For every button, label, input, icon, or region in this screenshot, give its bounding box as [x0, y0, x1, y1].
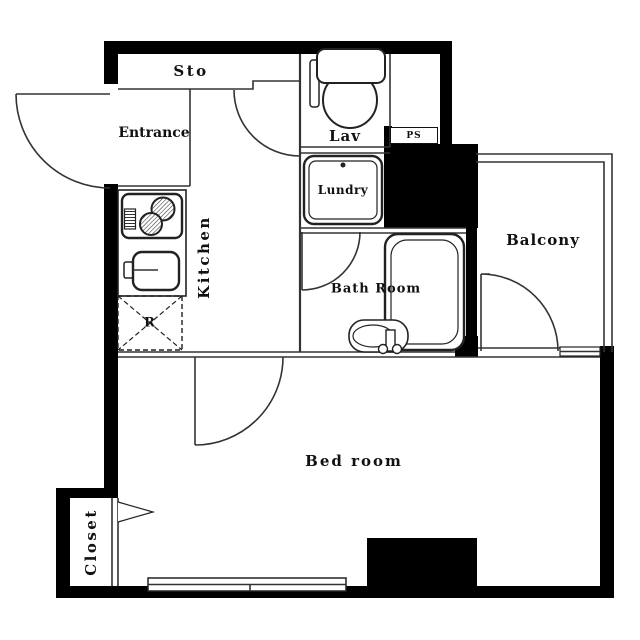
room-balcony [478, 162, 604, 352]
room-label-entrance: Entrance [118, 125, 189, 141]
room-label-ps: PS [406, 131, 421, 141]
room-storage [118, 54, 300, 89]
room-bedroom [118, 357, 600, 586]
room-label-kitchen: Kitchen [195, 215, 213, 299]
floor-plan: Sto Entrance Lav PS Lundry Kitchen Bath … [0, 0, 640, 640]
lav-door-arc [234, 90, 300, 156]
room-label-closet: Closet [82, 508, 100, 576]
room-label-laundry: Lundry [318, 183, 369, 197]
room-label-bathroom: Bath Room [331, 282, 421, 297]
room-label-bedroom: Bed room [305, 452, 403, 470]
room-label-lav: Lav [329, 127, 361, 145]
room-label-refrigerator: R [144, 316, 156, 331]
room-label-storage: Sto [173, 62, 208, 80]
entrance-door-arc [16, 94, 110, 188]
room-label-balcony: Balcony [506, 231, 580, 249]
ps-shaft-box: PS [390, 127, 438, 144]
